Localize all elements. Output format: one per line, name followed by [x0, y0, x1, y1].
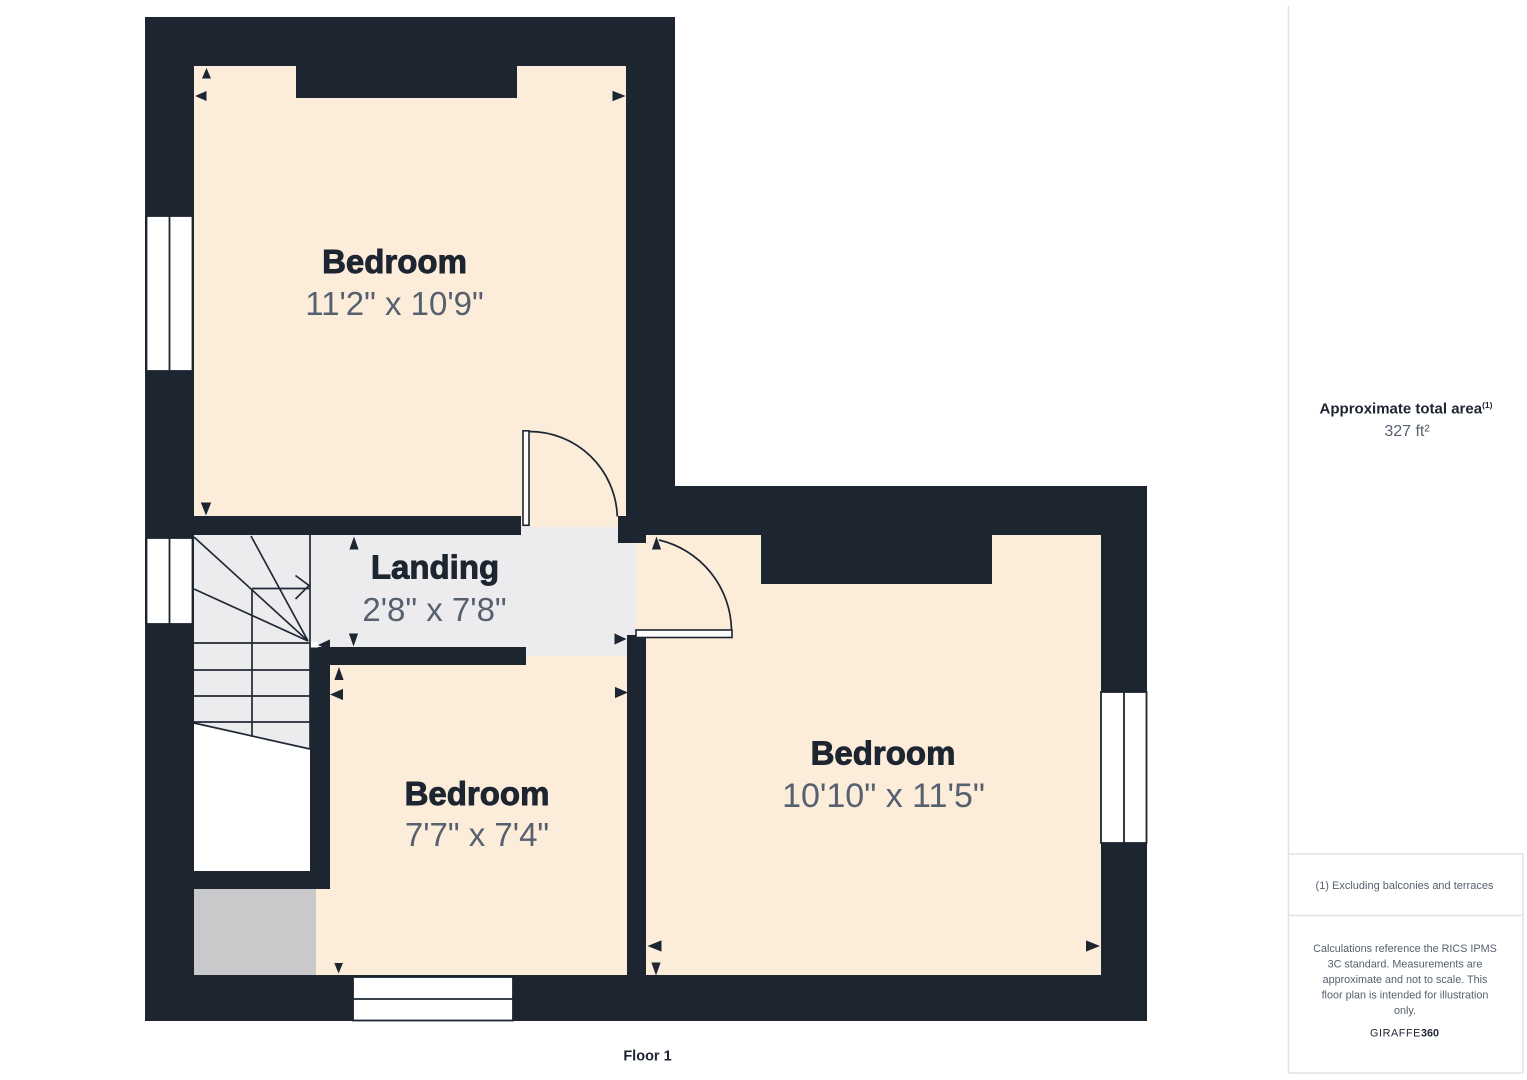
svg-text:approximate and not to scale.: approximate and not to scale. This	[1323, 974, 1488, 986]
svg-text:327 ft²: 327 ft²	[1384, 423, 1430, 440]
svg-text:Floor 1: Floor 1	[623, 1049, 671, 1065]
svg-text:Landing: Landing	[371, 549, 499, 586]
svg-text:Approximate total area(1): Approximate total area(1)	[1320, 400, 1493, 418]
svg-text:7'7" x 7'4": 7'7" x 7'4"	[405, 816, 549, 853]
svg-text:floor plan is intended for ill: floor plan is intended for illustration	[1322, 990, 1489, 1002]
svg-text:Bedroom: Bedroom	[322, 243, 467, 280]
svg-text:11'2" x 10'9": 11'2" x 10'9"	[305, 285, 484, 322]
svg-text:(1) Excluding balconies and te: (1) Excluding balconies and terraces	[1316, 880, 1494, 892]
svg-text:only.: only.	[1394, 1005, 1416, 1017]
svg-text:10'10" x 11'5": 10'10" x 11'5"	[782, 777, 985, 815]
svg-text:GIRAFFE360: GIRAFFE360	[1370, 1028, 1439, 1040]
svg-text:Bedroom: Bedroom	[405, 775, 550, 812]
svg-text:3C standard. Measurements are: 3C standard. Measurements are	[1328, 959, 1483, 971]
svg-text:Calculations reference the RIC: Calculations reference the RICS IPMS	[1313, 943, 1497, 955]
svg-text:Bedroom: Bedroom	[811, 735, 956, 772]
svg-text:2'8" x 7'8": 2'8" x 7'8"	[362, 591, 506, 628]
